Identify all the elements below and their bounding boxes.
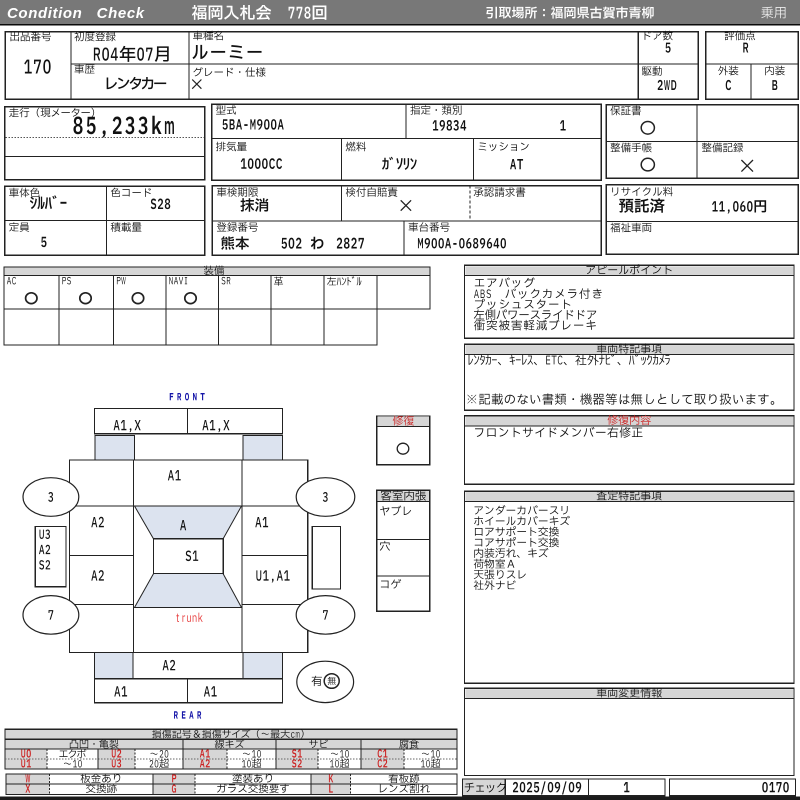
svg-text:Condition Check: Condition Check <box>7 5 145 22</box>
